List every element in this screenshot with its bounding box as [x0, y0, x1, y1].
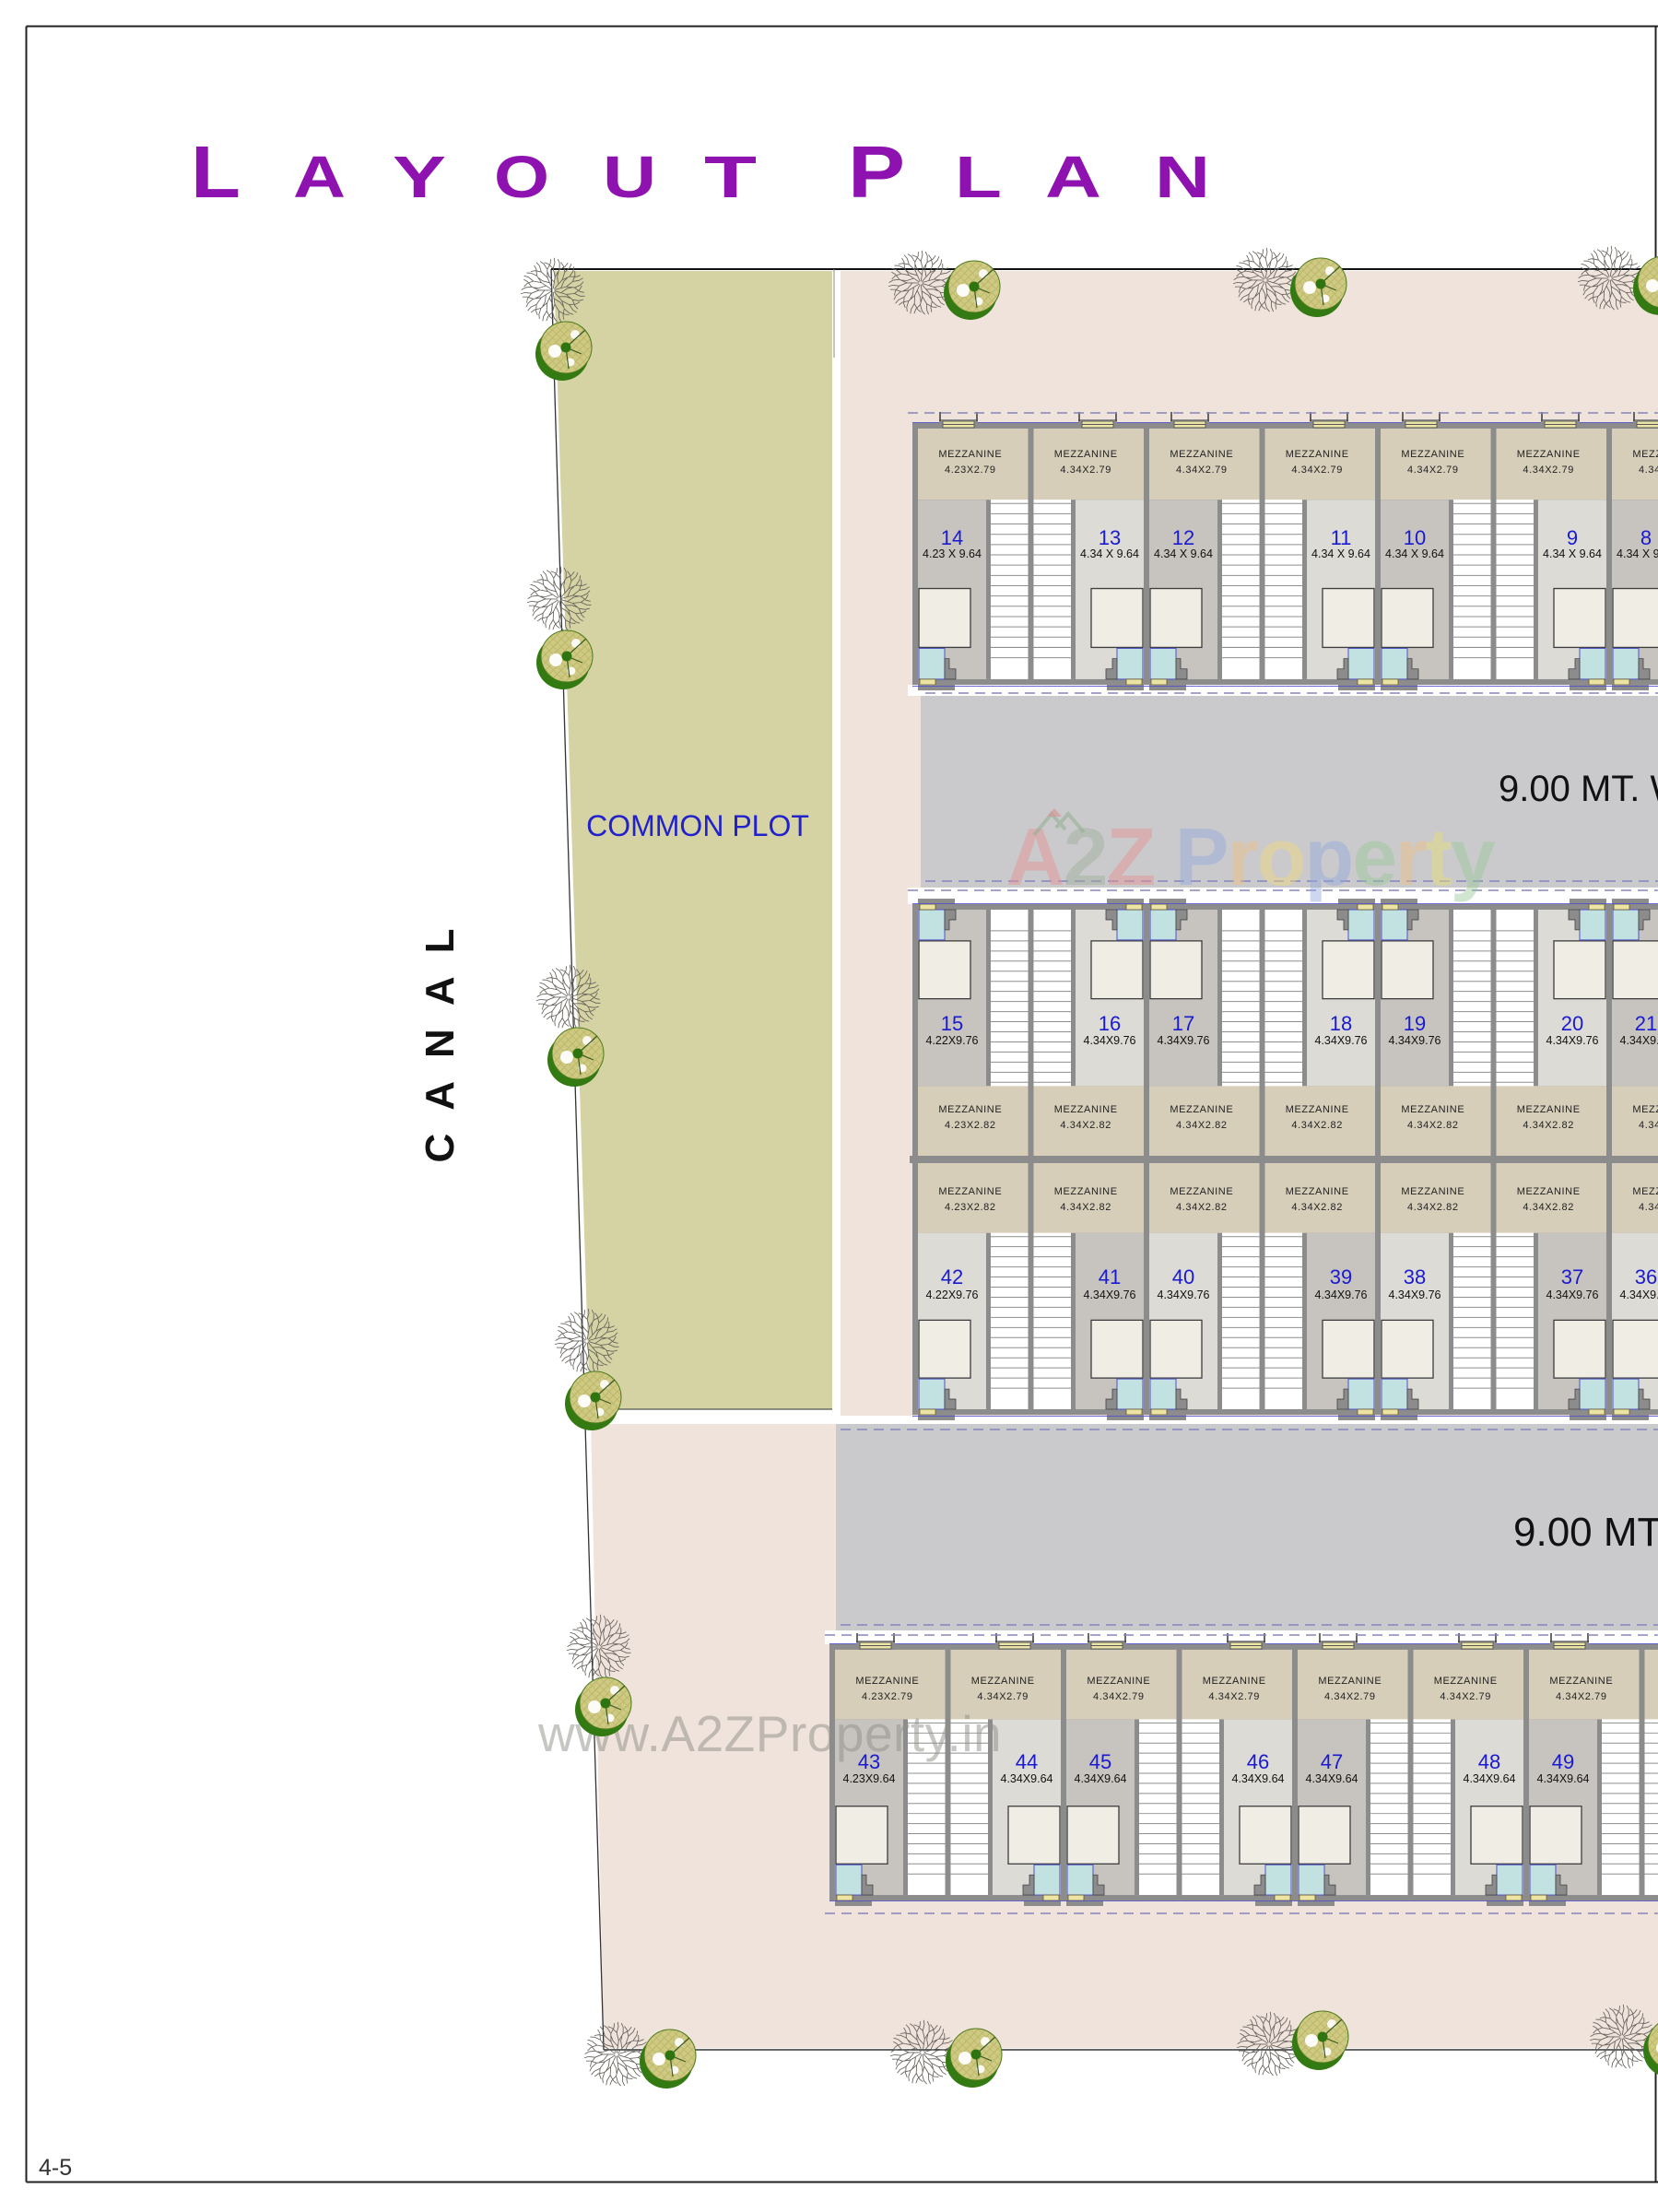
svg-text:4.34X9.76: 4.34X9.76 — [1158, 1288, 1210, 1301]
svg-text:MEZZANINE: MEZZANINE — [1286, 449, 1349, 460]
svg-text:4.34X2.79: 4.34X2.79 — [1407, 465, 1459, 476]
svg-text:P: P — [848, 131, 905, 213]
svg-text:N: N — [1155, 144, 1210, 210]
svg-text:4.34X9.64: 4.34X9.64 — [1001, 1772, 1053, 1785]
svg-text:4.34X9.76: 4.34X9.76 — [1315, 1034, 1368, 1047]
svg-text:MEZZANINE: MEZZANINE — [971, 1676, 1035, 1687]
svg-text:T: T — [704, 144, 757, 210]
svg-text:MEZZANINE: MEZZANINE — [1401, 1186, 1464, 1197]
svg-text:4.34X2.82: 4.34X2.82 — [1291, 1120, 1343, 1131]
svg-text:4.34X2.79: 4.34X2.79 — [1440, 1691, 1491, 1702]
svg-text:4.34X2.79: 4.34X2.79 — [977, 1691, 1029, 1702]
svg-text:21: 21 — [1635, 1012, 1657, 1035]
svg-text:MEZZANINE: MEZZANINE — [1632, 449, 1658, 460]
svg-text:MEZZANINE: MEZZANINE — [1632, 1186, 1658, 1197]
svg-text:MEZZANINE: MEZZANINE — [1401, 449, 1464, 460]
svg-text:46: 46 — [1247, 1750, 1269, 1773]
svg-text:MEZZANINE: MEZZANINE — [1170, 449, 1233, 460]
svg-text:MEZZANINE: MEZZANINE — [1632, 1104, 1658, 1115]
svg-text:MEZZANINE: MEZZANINE — [1054, 1186, 1118, 1197]
svg-text:4.34X9.76: 4.34X9.76 — [1546, 1288, 1599, 1301]
svg-text:4.23X2.79: 4.23X2.79 — [862, 1691, 913, 1702]
svg-text:L: L — [191, 131, 241, 213]
svg-text:4.34X2.79: 4.34X2.79 — [1176, 465, 1228, 476]
svg-text:4.34X9.64: 4.34X9.64 — [1232, 1772, 1285, 1785]
svg-text:38: 38 — [1404, 1265, 1426, 1288]
svg-text:COMMON PLOT: COMMON PLOT — [586, 809, 809, 842]
svg-text:4.34X2.82: 4.34X2.82 — [1639, 1202, 1658, 1213]
svg-text:MEZZANINE: MEZZANINE — [855, 1676, 919, 1687]
svg-text:4.34X2.82: 4.34X2.82 — [1176, 1120, 1228, 1131]
svg-text:13: 13 — [1099, 526, 1121, 549]
svg-text:MEZZANINE: MEZZANINE — [938, 1104, 1002, 1115]
svg-text:9: 9 — [1567, 526, 1578, 549]
svg-text:4.34X2.82: 4.34X2.82 — [1407, 1120, 1459, 1131]
svg-text:CANAL: CANAL — [417, 906, 463, 1163]
svg-text:47: 47 — [1321, 1750, 1343, 1773]
svg-text:4.34X9.76: 4.34X9.76 — [1620, 1288, 1658, 1301]
svg-text:MEZZANINE: MEZZANINE — [1286, 1186, 1349, 1197]
svg-text:U: U — [603, 144, 656, 210]
svg-text:4.34X2.82: 4.34X2.82 — [1639, 1120, 1658, 1131]
svg-text:41: 41 — [1099, 1265, 1121, 1288]
svg-text:39: 39 — [1330, 1265, 1352, 1288]
svg-text:4.34X9.76: 4.34X9.76 — [1084, 1288, 1136, 1301]
svg-text:MEZZANINE: MEZZANINE — [1401, 1104, 1464, 1115]
svg-text:4.34X9.76: 4.34X9.76 — [1389, 1034, 1441, 1047]
svg-text:9.00 MT. WIDE ROAD: 9.00 MT. WIDE ROAD — [1513, 1510, 1658, 1555]
svg-text:4.34X9.64: 4.34X9.64 — [1075, 1772, 1127, 1785]
svg-text:MEZZANINE: MEZZANINE — [1054, 449, 1118, 460]
svg-text:MEZZANINE: MEZZANINE — [1549, 1676, 1613, 1687]
svg-text:40: 40 — [1172, 1265, 1194, 1288]
svg-text:4.34X2.79: 4.34X2.79 — [1291, 465, 1343, 476]
svg-text:14: 14 — [941, 526, 963, 549]
svg-text:16: 16 — [1099, 1012, 1121, 1035]
svg-text:4.34X2.79: 4.34X2.79 — [1060, 465, 1111, 476]
svg-text:4.34X2.79: 4.34X2.79 — [1324, 1691, 1376, 1702]
svg-text:MEZZANINE: MEZZANINE — [938, 449, 1002, 460]
svg-text:4.23X2.79: 4.23X2.79 — [945, 465, 996, 476]
svg-text:MEZZANINE: MEZZANINE — [1318, 1676, 1382, 1687]
svg-text:4.34X9.64: 4.34X9.64 — [1306, 1772, 1358, 1785]
svg-text:4.22X9.76: 4.22X9.76 — [926, 1034, 979, 1047]
svg-text:19: 19 — [1404, 1012, 1426, 1035]
svg-text:Y: Y — [393, 144, 446, 210]
svg-text:17: 17 — [1172, 1012, 1194, 1035]
svg-text:4.23X2.82: 4.23X2.82 — [945, 1120, 996, 1131]
svg-text:4.23 X 9.64: 4.23 X 9.64 — [923, 547, 982, 560]
svg-text:49: 49 — [1552, 1750, 1574, 1773]
svg-text:4.34X9.64: 4.34X9.64 — [1537, 1772, 1590, 1785]
svg-text:MEZZANINE: MEZZANINE — [1054, 1104, 1118, 1115]
svg-text:MEZZANINE: MEZZANINE — [1517, 1104, 1581, 1115]
svg-text:42: 42 — [941, 1265, 963, 1288]
svg-text:MEZZANINE: MEZZANINE — [1517, 1186, 1581, 1197]
svg-text:MEZZANINE: MEZZANINE — [1170, 1186, 1233, 1197]
svg-text:4.34X2.82: 4.34X2.82 — [1291, 1202, 1343, 1213]
svg-text:4.34X2.82: 4.34X2.82 — [1523, 1120, 1574, 1131]
svg-text:4.34 X 9.64: 4.34 X 9.64 — [1617, 547, 1658, 560]
svg-text:4.34X2.79: 4.34X2.79 — [1208, 1691, 1260, 1702]
svg-text:4.34X9.76: 4.34X9.76 — [1546, 1034, 1599, 1047]
svg-text:MEZZANINE: MEZZANINE — [938, 1186, 1002, 1197]
svg-text:11: 11 — [1331, 526, 1352, 549]
svg-text:4.34X2.82: 4.34X2.82 — [1060, 1120, 1111, 1131]
svg-text:4-5: 4-5 — [39, 2155, 72, 2181]
svg-text:4.34 X 9.64: 4.34 X 9.64 — [1543, 547, 1602, 560]
svg-text:8: 8 — [1640, 526, 1652, 549]
svg-text:10: 10 — [1404, 526, 1426, 549]
svg-text:4.34 X 9.64: 4.34 X 9.64 — [1154, 547, 1213, 560]
svg-text:4.23X2.82: 4.23X2.82 — [945, 1202, 996, 1213]
svg-text:18: 18 — [1330, 1012, 1352, 1035]
svg-text:48: 48 — [1478, 1750, 1500, 1773]
svg-text:L: L — [955, 144, 1002, 210]
svg-text:A: A — [293, 144, 346, 210]
svg-text:4.34X2.82: 4.34X2.82 — [1523, 1202, 1574, 1213]
svg-text:4.34 X 9.64: 4.34 X 9.64 — [1311, 547, 1370, 560]
svg-text:15: 15 — [941, 1012, 963, 1035]
svg-text:MEZZANINE: MEZZANINE — [1517, 449, 1581, 460]
svg-text:4.34X2.79: 4.34X2.79 — [1639, 465, 1658, 476]
svg-text:4.34X2.82: 4.34X2.82 — [1176, 1202, 1228, 1213]
svg-text:4.34X9.64: 4.34X9.64 — [1464, 1772, 1516, 1785]
svg-text:A: A — [1045, 144, 1101, 210]
svg-text:MEZZANINE: MEZZANINE — [1434, 1676, 1498, 1687]
svg-text:4.34X2.82: 4.34X2.82 — [1407, 1202, 1459, 1213]
svg-text:4.34X2.79: 4.34X2.79 — [1556, 1691, 1607, 1702]
svg-text:4.34X9.76: 4.34X9.76 — [1315, 1288, 1368, 1301]
svg-text:4.34 X 9.64: 4.34 X 9.64 — [1385, 547, 1444, 560]
svg-text:4.34X2.79: 4.34X2.79 — [1523, 465, 1574, 476]
svg-text:O: O — [494, 144, 549, 210]
svg-text:37: 37 — [1561, 1265, 1583, 1288]
svg-text:4.34X9.76: 4.34X9.76 — [1084, 1034, 1136, 1047]
svg-text:MEZZANINE: MEZZANINE — [1286, 1104, 1349, 1115]
svg-text:20: 20 — [1561, 1012, 1583, 1035]
svg-text:45: 45 — [1089, 1750, 1111, 1773]
svg-text:4.34X2.79: 4.34X2.79 — [1093, 1691, 1145, 1702]
svg-text:MEZZANINE: MEZZANINE — [1170, 1104, 1233, 1115]
svg-text:4.34X9.76: 4.34X9.76 — [1158, 1034, 1210, 1047]
svg-text:4.34 X 9.64: 4.34 X 9.64 — [1080, 547, 1139, 560]
svg-text:9.00 MT. WIDE ROAD: 9.00 MT. WIDE ROAD — [1499, 769, 1658, 809]
svg-text:4.34X9.76: 4.34X9.76 — [1620, 1034, 1658, 1047]
svg-text:44: 44 — [1016, 1750, 1038, 1773]
svg-text:36: 36 — [1635, 1265, 1657, 1288]
svg-text:4.22X9.76: 4.22X9.76 — [926, 1288, 979, 1301]
svg-text:4.23X9.64: 4.23X9.64 — [843, 1772, 896, 1785]
svg-text:MEZZANINE: MEZZANINE — [1087, 1676, 1150, 1687]
svg-text:4.34X9.76: 4.34X9.76 — [1389, 1288, 1441, 1301]
svg-text:MEZZANINE: MEZZANINE — [1203, 1676, 1266, 1687]
svg-text:12: 12 — [1172, 526, 1194, 549]
svg-text:4.34X2.82: 4.34X2.82 — [1060, 1202, 1111, 1213]
